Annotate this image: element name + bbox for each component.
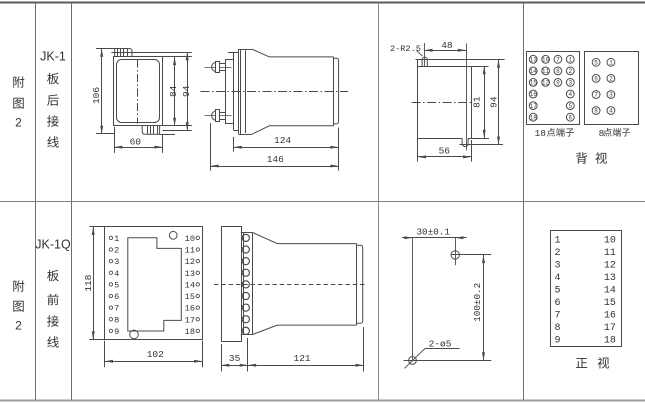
svg-text:9: 9 (555, 335, 561, 346)
svg-text:106: 106 (91, 87, 102, 104)
svg-text:18: 18 (185, 327, 195, 337)
svg-text:35: 35 (229, 353, 241, 364)
svg-text:2: 2 (609, 76, 613, 83)
svg-text:94: 94 (181, 85, 192, 97)
svg-text:5: 5 (114, 280, 119, 290)
svg-text:124: 124 (274, 135, 291, 146)
svg-text:1: 1 (609, 60, 613, 67)
svg-text:14: 14 (530, 68, 538, 75)
svg-text:4: 4 (555, 273, 561, 284)
svg-text:2: 2 (555, 248, 561, 259)
svg-text:5: 5 (568, 103, 572, 110)
svg-text:13: 13 (530, 57, 538, 64)
svg-text:8: 8 (114, 315, 119, 325)
svg-text:1: 1 (555, 235, 561, 246)
svg-text:16: 16 (604, 310, 616, 321)
svg-text:1: 1 (114, 234, 119, 244)
svg-text:6: 6 (568, 114, 572, 121)
svg-text:16: 16 (530, 91, 538, 98)
svg-text:5: 5 (555, 285, 561, 296)
svg-text:10: 10 (542, 57, 550, 64)
svg-text:12: 12 (542, 80, 550, 87)
svg-text:17: 17 (530, 103, 538, 110)
svg-text:14: 14 (604, 285, 616, 296)
svg-text:30±0.1: 30±0.1 (416, 226, 450, 237)
svg-text:7: 7 (594, 92, 598, 99)
svg-text:10: 10 (604, 235, 616, 246)
svg-text:102: 102 (147, 349, 164, 360)
svg-text:146: 146 (267, 154, 284, 165)
svg-text:8: 8 (555, 323, 561, 334)
svg-text:2: 2 (568, 68, 572, 75)
svg-text:3: 3 (609, 92, 613, 99)
svg-text:15: 15 (604, 298, 616, 309)
svg-text:6: 6 (555, 298, 561, 309)
svg-text:60: 60 (130, 136, 142, 147)
svg-text:9: 9 (556, 80, 560, 87)
svg-text:8: 8 (599, 128, 605, 139)
svg-text:18: 18 (535, 128, 547, 139)
svg-text:12: 12 (185, 257, 195, 267)
svg-text:16: 16 (185, 304, 195, 314)
svg-text:15: 15 (530, 80, 538, 87)
svg-text:4: 4 (568, 91, 572, 98)
svg-text:17: 17 (185, 315, 195, 325)
svg-text:2: 2 (15, 116, 22, 130)
svg-text:3: 3 (568, 80, 572, 87)
svg-text:12: 12 (604, 260, 616, 271)
svg-text:4: 4 (114, 269, 119, 279)
svg-text:3: 3 (555, 260, 561, 271)
svg-text:11: 11 (542, 68, 550, 75)
svg-text:14: 14 (185, 280, 195, 290)
svg-text:JK-1Q: JK-1Q (35, 238, 71, 252)
svg-text:18: 18 (604, 335, 616, 346)
svg-text:100±0.2: 100±0.2 (472, 283, 483, 322)
svg-text:13: 13 (604, 273, 616, 284)
svg-text:11: 11 (604, 248, 616, 259)
svg-text:5: 5 (594, 60, 598, 67)
svg-text:15: 15 (185, 292, 195, 302)
svg-text:2: 2 (114, 246, 119, 256)
svg-text:7: 7 (555, 310, 561, 321)
svg-text:81: 81 (472, 96, 483, 108)
svg-text:48: 48 (441, 40, 453, 51)
svg-text:84: 84 (168, 85, 179, 97)
svg-text:1: 1 (568, 57, 572, 64)
svg-text:3: 3 (114, 257, 119, 267)
svg-text:8: 8 (594, 108, 598, 115)
svg-text:2: 2 (15, 319, 22, 333)
svg-text:8: 8 (556, 68, 560, 75)
svg-text:7: 7 (114, 304, 119, 314)
svg-text:4: 4 (609, 108, 613, 115)
svg-text:2-ø5: 2-ø5 (429, 339, 452, 350)
svg-text:11: 11 (185, 246, 195, 256)
svg-text:13: 13 (185, 269, 195, 279)
svg-text:121: 121 (294, 353, 311, 364)
svg-text:7: 7 (556, 57, 560, 64)
svg-text:6: 6 (594, 76, 598, 83)
svg-text:18: 18 (530, 114, 538, 121)
svg-text:2-R2.5: 2-R2.5 (390, 44, 421, 54)
svg-text:9: 9 (114, 327, 119, 337)
svg-text:118: 118 (83, 274, 94, 291)
svg-text:17: 17 (604, 323, 616, 334)
svg-text:6: 6 (114, 292, 119, 302)
svg-text:10: 10 (185, 234, 195, 244)
svg-text:56: 56 (439, 146, 451, 157)
svg-text:JK-1: JK-1 (40, 50, 66, 64)
svg-text:94: 94 (489, 96, 500, 108)
